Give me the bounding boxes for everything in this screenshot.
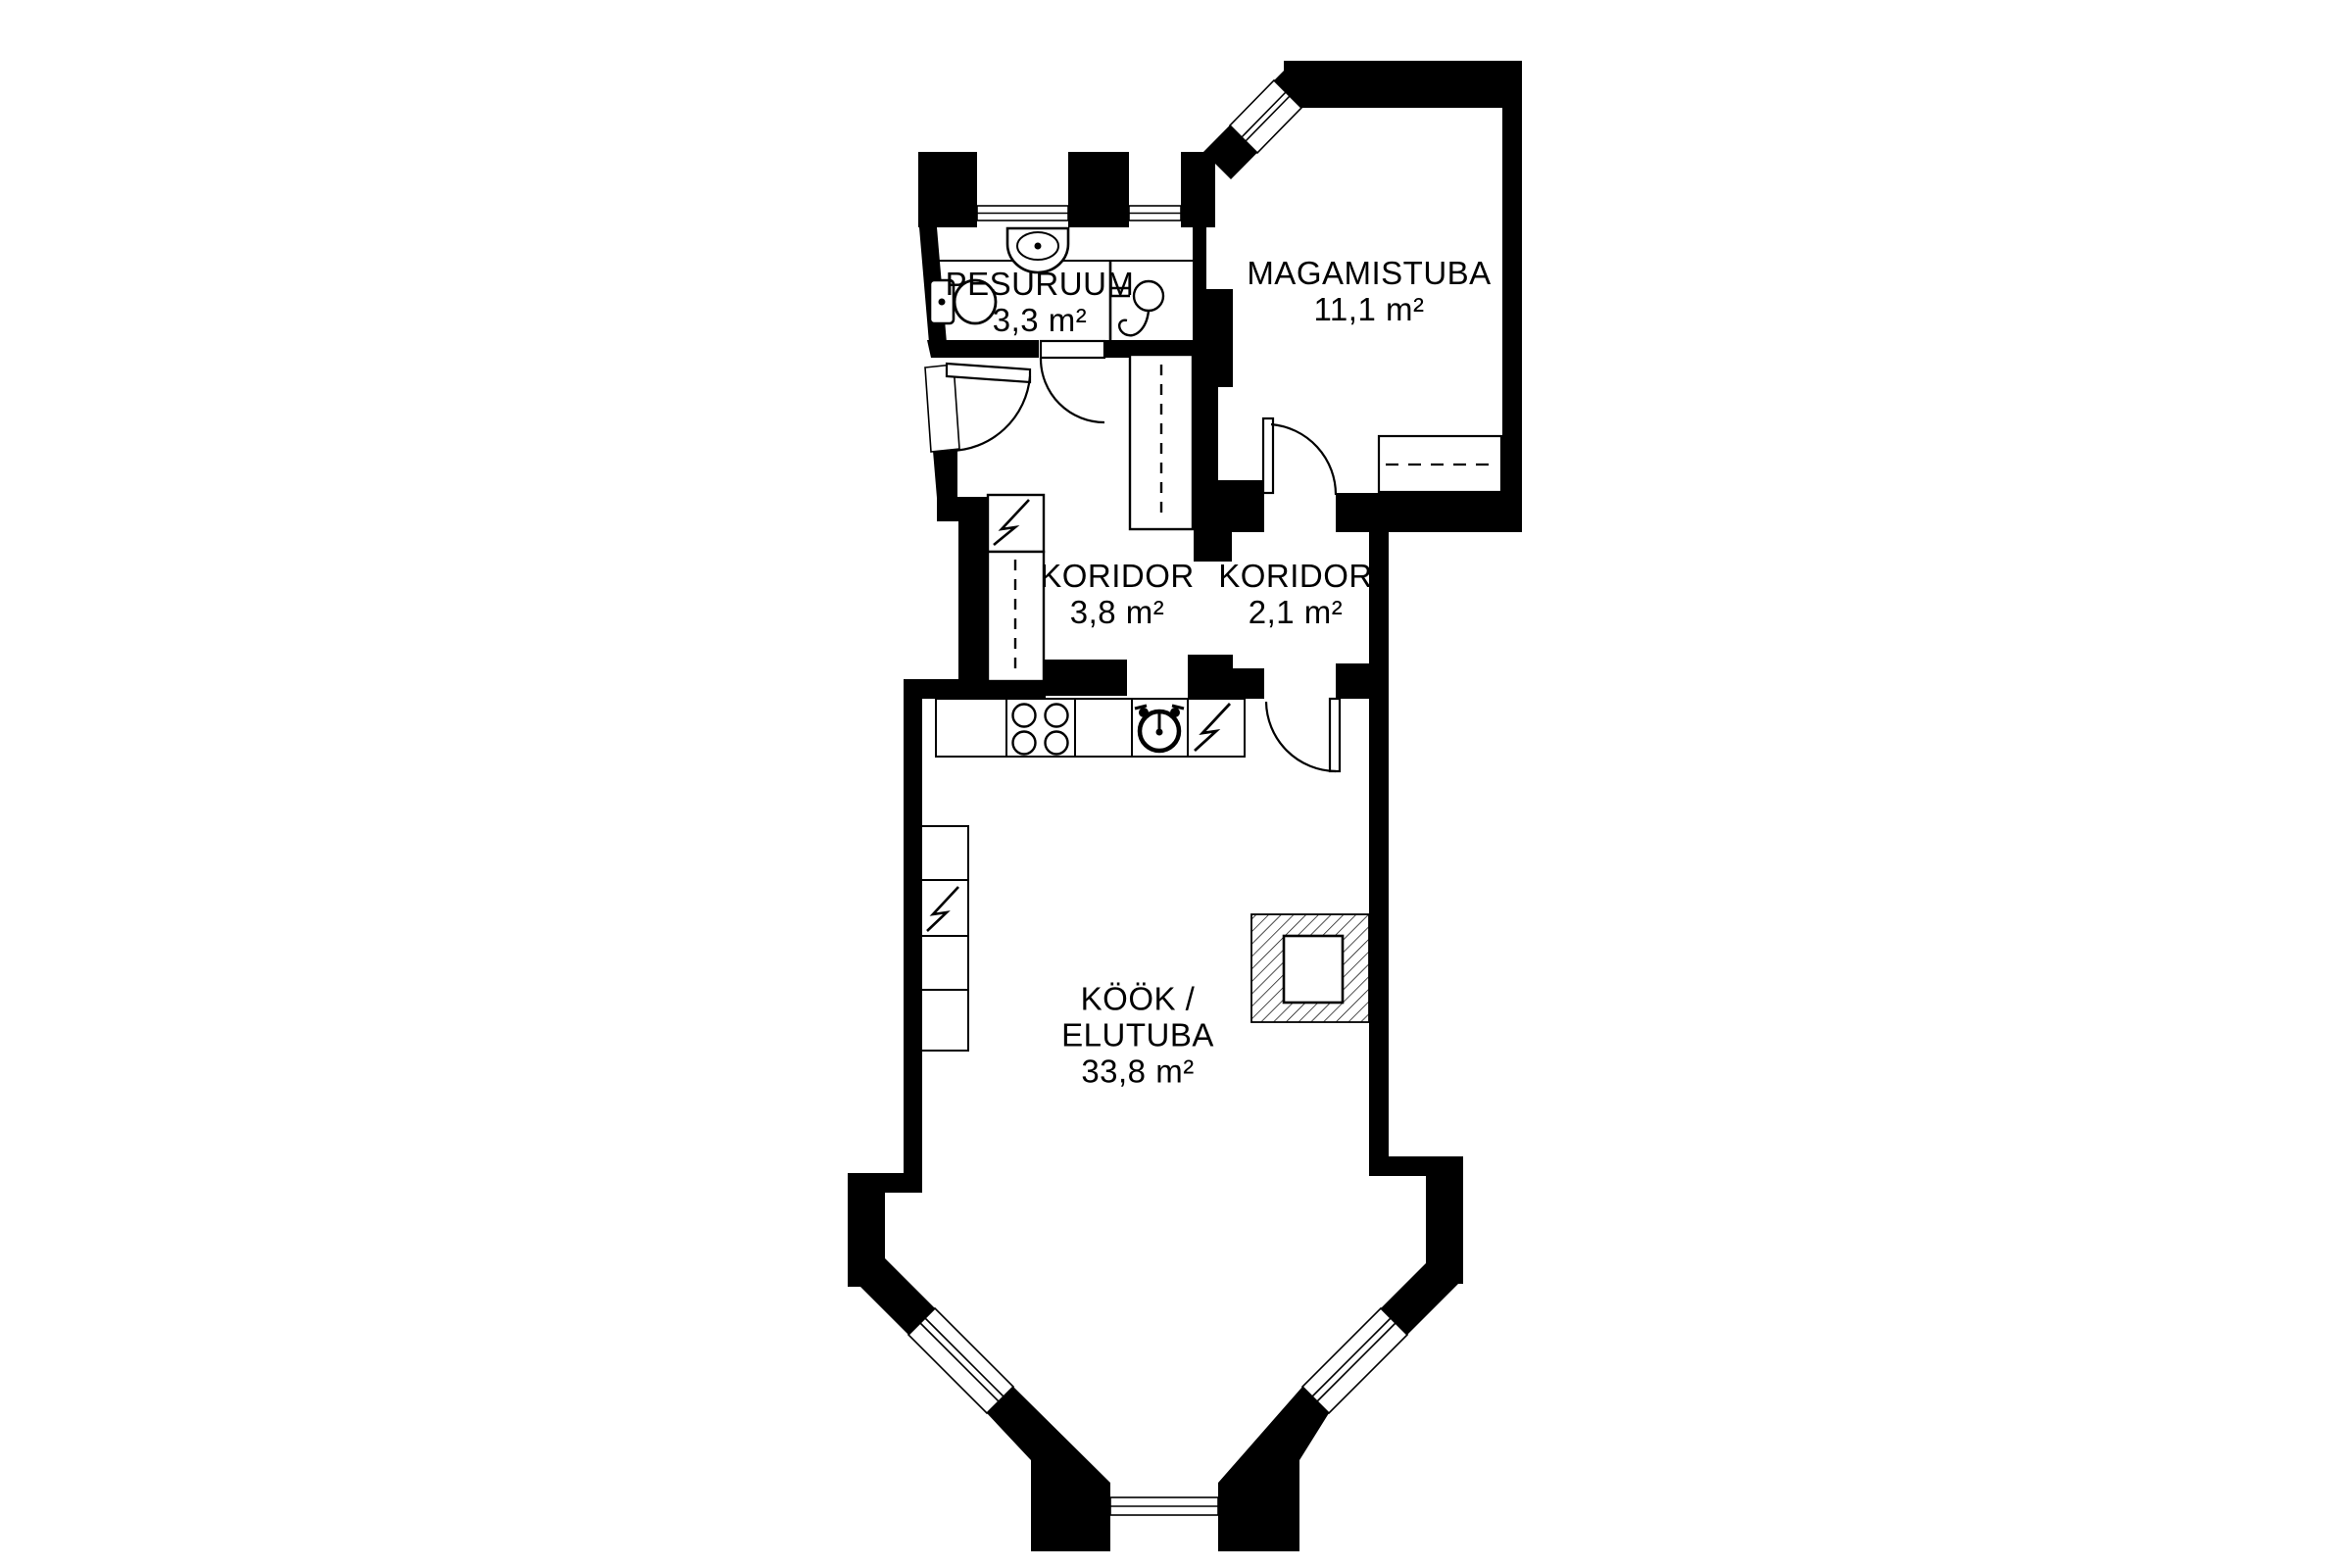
room-name: KÖÖK /	[1061, 981, 1214, 1017]
room-label-kook-elutuba: KÖÖK / ELUTUBA 33,8 m²	[1061, 981, 1214, 1090]
room-area: 33,8 m²	[1061, 1053, 1214, 1090]
wardrobe-icon	[988, 552, 1044, 681]
window-icon-bath-left	[977, 206, 1068, 220]
bedroom-door-icon	[1263, 418, 1336, 495]
floor-plan-drawing	[0, 0, 2352, 1568]
bedroom-fixtures	[1379, 436, 1501, 492]
fireplace-icon	[1251, 914, 1369, 1022]
room-label-pesuruum: PESURUUM 3,3 m²	[946, 266, 1135, 338]
window-icon-bay-left	[908, 1308, 1013, 1413]
room-name: KORIDOR	[1218, 558, 1373, 594]
room-name: MAGAMISTUBA	[1247, 255, 1491, 291]
kitchen-door-icon	[1266, 699, 1340, 771]
corridor-fixtures	[988, 355, 1193, 681]
hall-closet-icon	[1130, 355, 1193, 529]
window-icon-bay-right	[1302, 1308, 1407, 1413]
room-area: 2,1 m²	[1218, 594, 1373, 630]
room-name: KORIDOR	[1040, 558, 1195, 594]
entry-door-icon	[925, 364, 1030, 452]
room-name-line2: ELUTUBA	[1061, 1017, 1214, 1053]
room-area: 3,3 m²	[946, 302, 1135, 338]
bathroom-door-icon	[1041, 341, 1104, 422]
cabinet-column-icon	[921, 826, 968, 1051]
dresser-icon	[1379, 436, 1501, 492]
window-icon-bath-right	[1129, 206, 1181, 220]
room-label-magamistuba: MAGAMISTUBA 11,1 m²	[1247, 255, 1491, 327]
window-icon-bay-bottom	[1110, 1497, 1218, 1515]
room-area: 3,8 m²	[1040, 594, 1195, 630]
room-name: PESURUUM	[946, 266, 1135, 302]
electrical-panel-icon	[988, 495, 1044, 552]
room-label-koridor-1: KORIDOR 3,8 m²	[1040, 558, 1195, 630]
floor-plan-page: PESURUUM 3,3 m² MAGAMISTUBA 11,1 m² KORI…	[0, 0, 2352, 1568]
room-area: 11,1 m²	[1247, 291, 1491, 327]
room-label-koridor-2: KORIDOR 2,1 m²	[1218, 558, 1373, 630]
